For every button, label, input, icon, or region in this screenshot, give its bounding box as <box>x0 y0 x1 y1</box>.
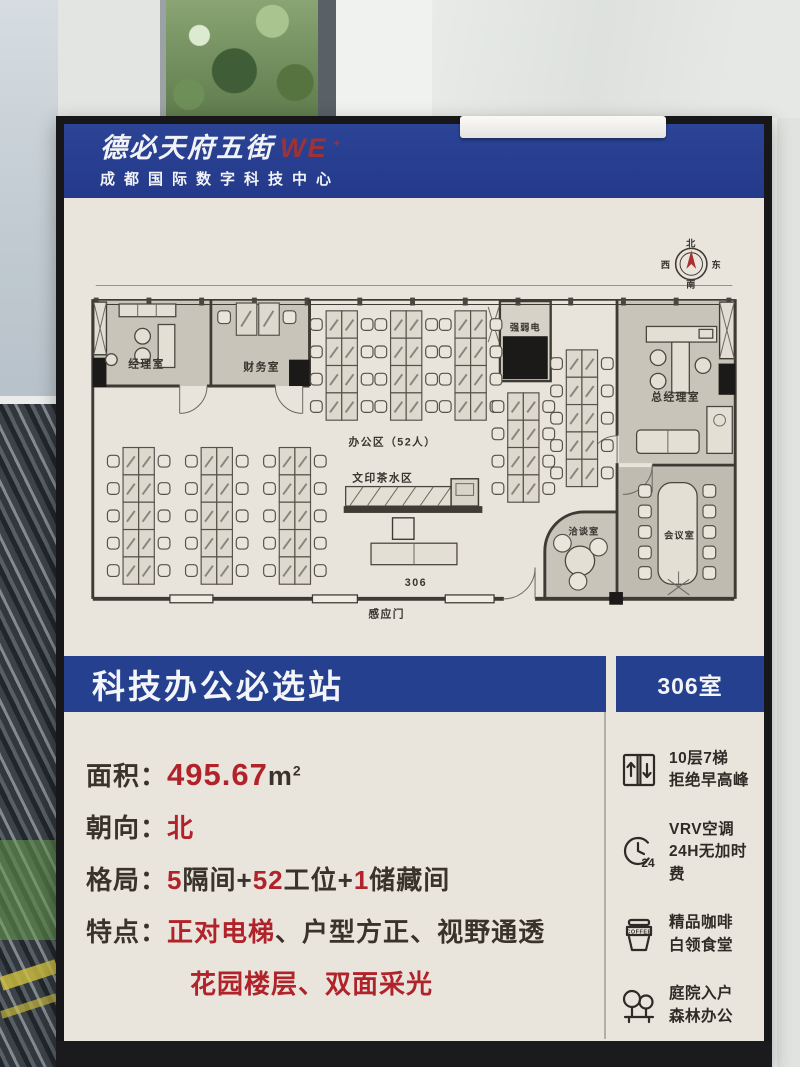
brand-subtitle: 成都国际数字科技中心 <box>100 168 764 189</box>
amenities-list: 10层7梯拒绝早高峰 24 VRV空调24H无加时费 <box>606 712 764 1039</box>
banner-title: 科技办公必选站 <box>64 656 606 712</box>
floorplan-svg: 北 东 南 西 <box>84 202 744 654</box>
label-gm-room: 总经理室 <box>651 391 700 404</box>
clock-24-icon: 24 <box>618 833 660 873</box>
wall <box>0 0 58 404</box>
label-manager-room: 经理室 <box>128 357 165 370</box>
elevator-icon <box>618 750 660 790</box>
photo-scene: 德必天府五街WE+ 成都国际数字科技中心 <box>0 0 800 1067</box>
compass-west: 西 <box>661 260 671 270</box>
svg-text:24: 24 <box>641 856 655 870</box>
compass-east: 东 <box>712 259 722 270</box>
frosted-glass <box>432 0 800 118</box>
brand-name: 德必天府五街 <box>100 133 274 163</box>
title-banner: 科技办公必选站 306室 <box>64 656 764 712</box>
svg-text:COFFEE: COFFEE <box>626 929 651 935</box>
glass-partition-edge <box>336 0 432 118</box>
label-meeting-room: 会议室 <box>664 529 695 540</box>
amenity-hvac: 24 VRV空调24H无加时费 <box>618 819 760 886</box>
spec-orientation: 朝向：北 <box>86 808 604 845</box>
spec-layout: 格局：5隔间+52工位+1储藏间 <box>86 860 604 897</box>
label-office-area: 办公区（52人） <box>349 436 437 449</box>
compass-south: 南 <box>686 278 696 289</box>
brand-logo-sup: + <box>334 138 342 150</box>
label-print-tea-area: 文印茶水区 <box>352 472 413 485</box>
floorplan-section: 北 东 南 西 <box>64 198 764 656</box>
carpet-green-accent <box>0 840 58 940</box>
amenity-elevator: 10层7梯拒绝早高峰 <box>618 748 760 793</box>
trees-icon <box>618 986 660 1026</box>
sensor-door-panel <box>445 595 494 603</box>
brand-logo-we: WE <box>280 133 328 163</box>
floor-baseboard <box>0 396 58 404</box>
banner-room-number: 306室 <box>616 656 764 712</box>
printer <box>451 479 478 506</box>
amenity-garden: 庭院入户森林办公 <box>618 983 760 1028</box>
sensor-door-panel <box>312 595 357 603</box>
window-trees <box>166 0 318 118</box>
poster-bottom-frame <box>56 1041 772 1067</box>
spec-area: 面积：495.67m2 <box>86 756 604 793</box>
label-finance-room: 财务室 <box>242 360 280 373</box>
utility-shaft <box>503 336 548 379</box>
details-section: 面积：495.67m2 朝向：北 格局：5隔间+52工位+1储藏间 特点：正对电… <box>64 712 764 1039</box>
spec-features-line2: 花园楼层、双面采光 <box>190 964 604 1001</box>
label-utility-room: 强弱电 <box>510 321 541 332</box>
coffee-icon: COFFEE <box>618 915 660 955</box>
label-room-number: 306 <box>405 577 427 589</box>
amenity-coffee: COFFEE 精品咖啡白领食堂 <box>618 912 760 957</box>
poster-clip <box>460 116 666 138</box>
compass-icon: 北 东 南 西 <box>661 237 722 289</box>
label-sensor-door: 感应门 <box>368 607 405 620</box>
label-talk-room: 洽谈室 <box>569 525 600 536</box>
floorplan-poster-board: 德必天府五街WE+ 成都国际数字科技中心 <box>56 116 772 1067</box>
banner-gap <box>606 656 616 712</box>
compass-north: 北 <box>686 237 696 248</box>
spec-list: 面积：495.67m2 朝向：北 格局：5隔间+52工位+1储藏间 特点：正对电… <box>64 712 604 1039</box>
window-frame <box>318 0 336 118</box>
frosted-glass <box>772 118 800 1067</box>
spec-features: 特点：正对电梯、户型方正、视野通透 <box>86 912 604 949</box>
